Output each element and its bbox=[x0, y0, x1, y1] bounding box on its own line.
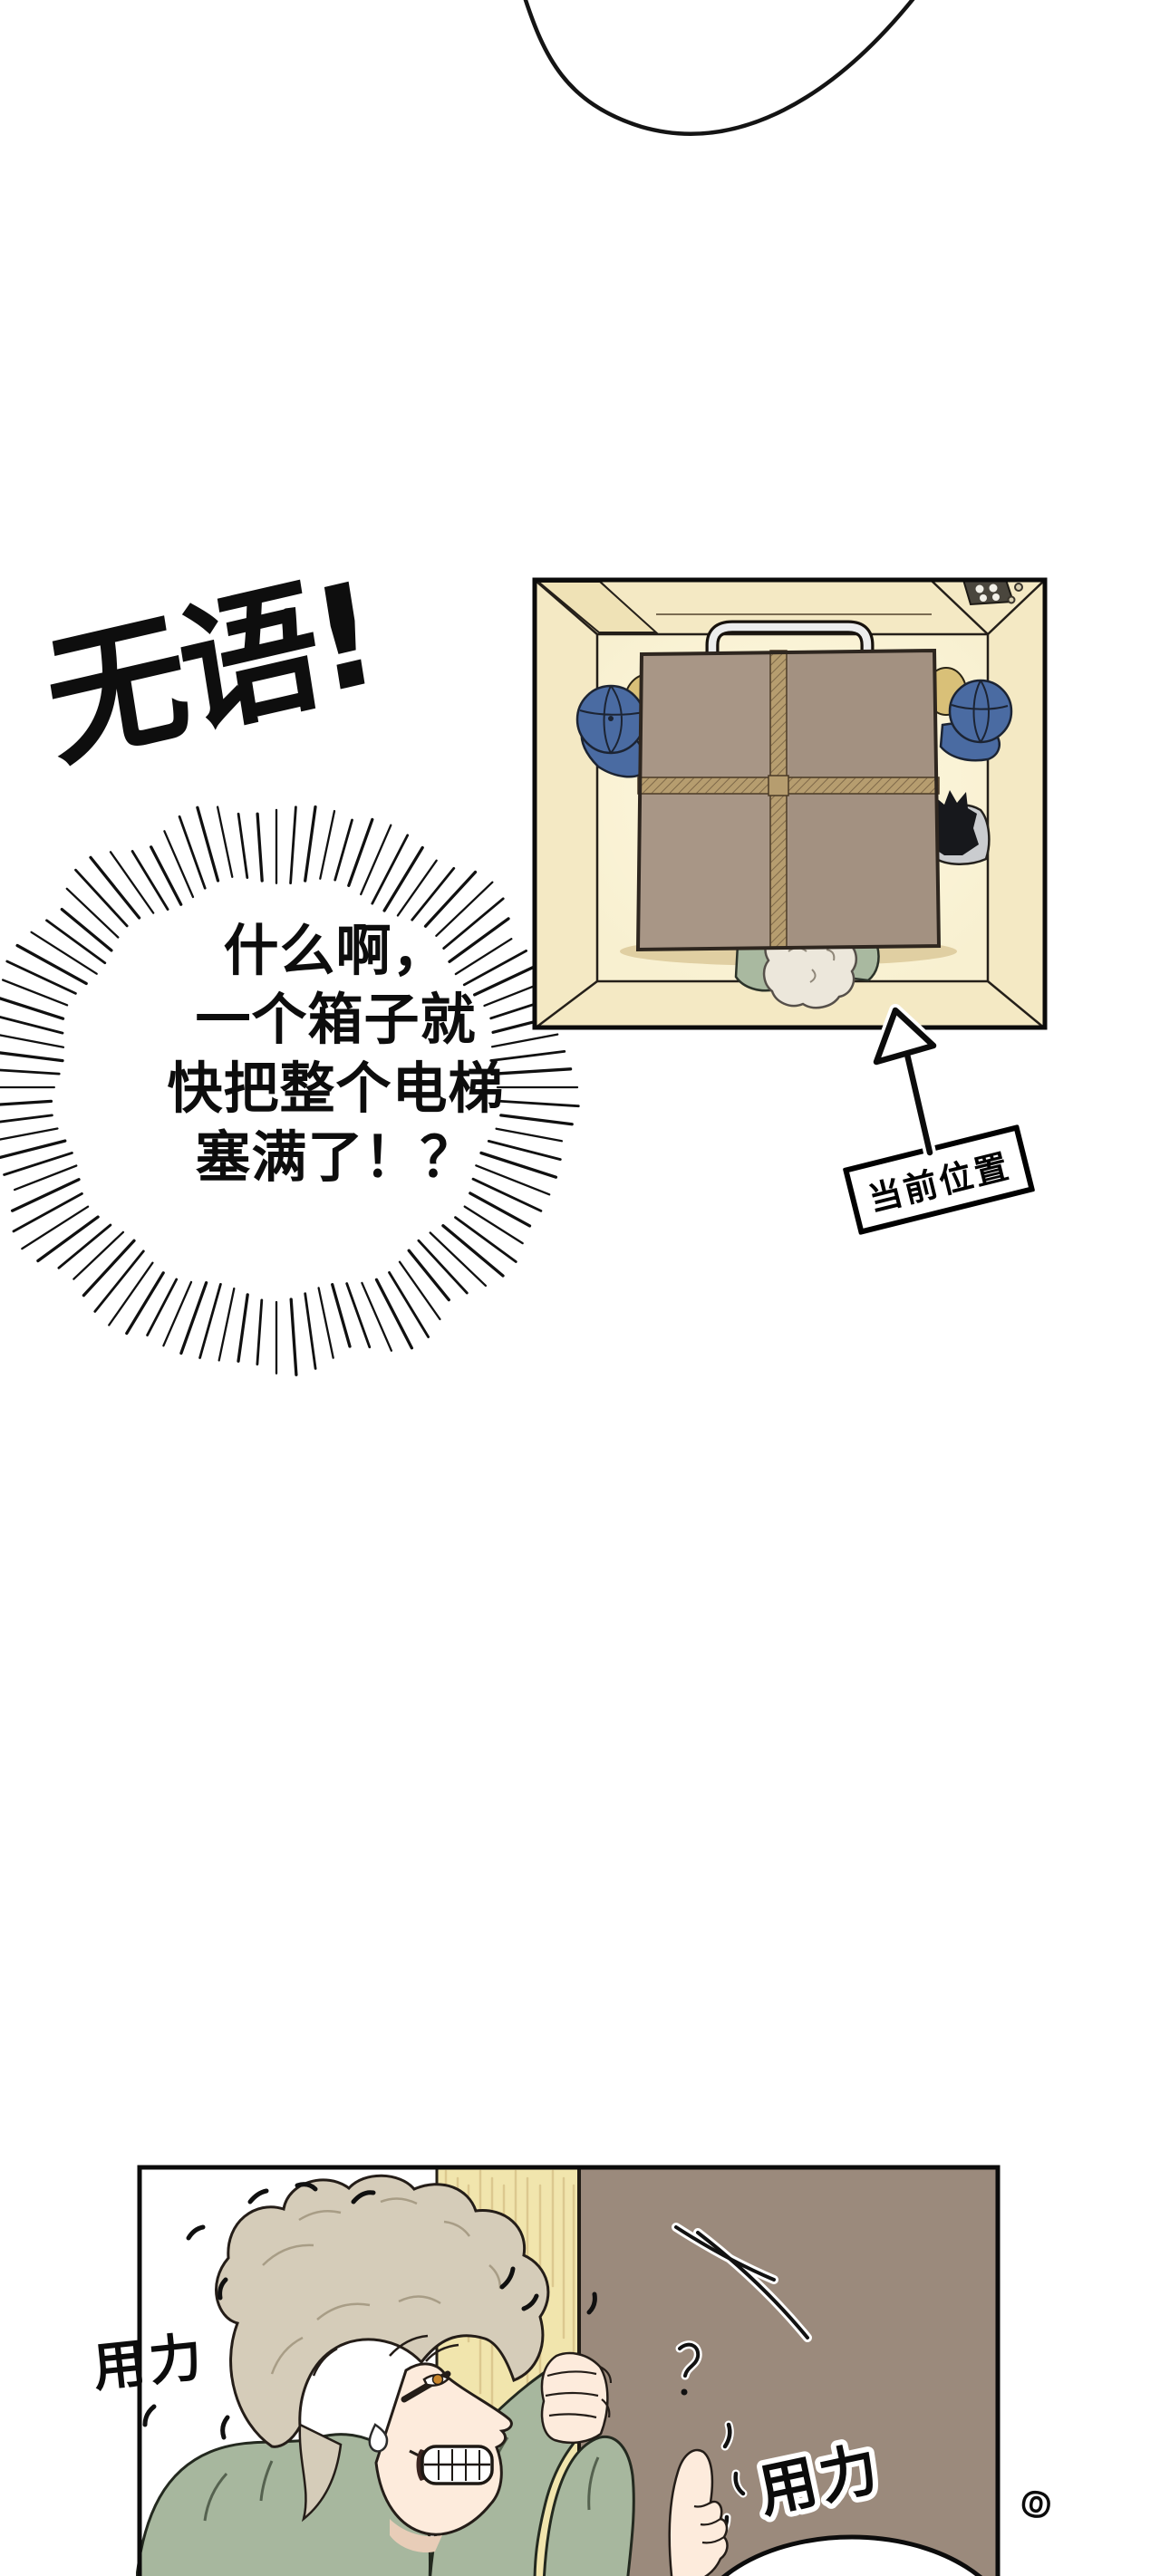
elevator-box bbox=[638, 651, 939, 950]
gritted-teeth bbox=[410, 2446, 492, 2484]
sfx-push-left: 用力 bbox=[89, 2314, 208, 2402]
comic-page: 无语! 什么啊， 一个箱子就 快把整个电梯 塞满了！？ bbox=[0, 0, 1160, 2576]
dialogue-line: 什么啊， bbox=[107, 917, 565, 986]
dialogue-line: 塞满了！？ bbox=[107, 1124, 565, 1192]
dialogue-line: 一个箱子就 bbox=[107, 986, 565, 1055]
hand-grip bbox=[542, 2353, 611, 2443]
pushing-panel: 用力 bbox=[136, 2164, 1001, 2576]
iris bbox=[433, 2375, 443, 2385]
dialogue-line: 快把整个电梯 bbox=[107, 1055, 565, 1124]
top-speech-bubble-arc bbox=[524, 0, 918, 134]
burst-bubble-text: 什么啊， 一个箱子就 快把整个电梯 塞满了！？ bbox=[107, 917, 565, 1192]
elevator-overhead-panel bbox=[530, 575, 1049, 1035]
